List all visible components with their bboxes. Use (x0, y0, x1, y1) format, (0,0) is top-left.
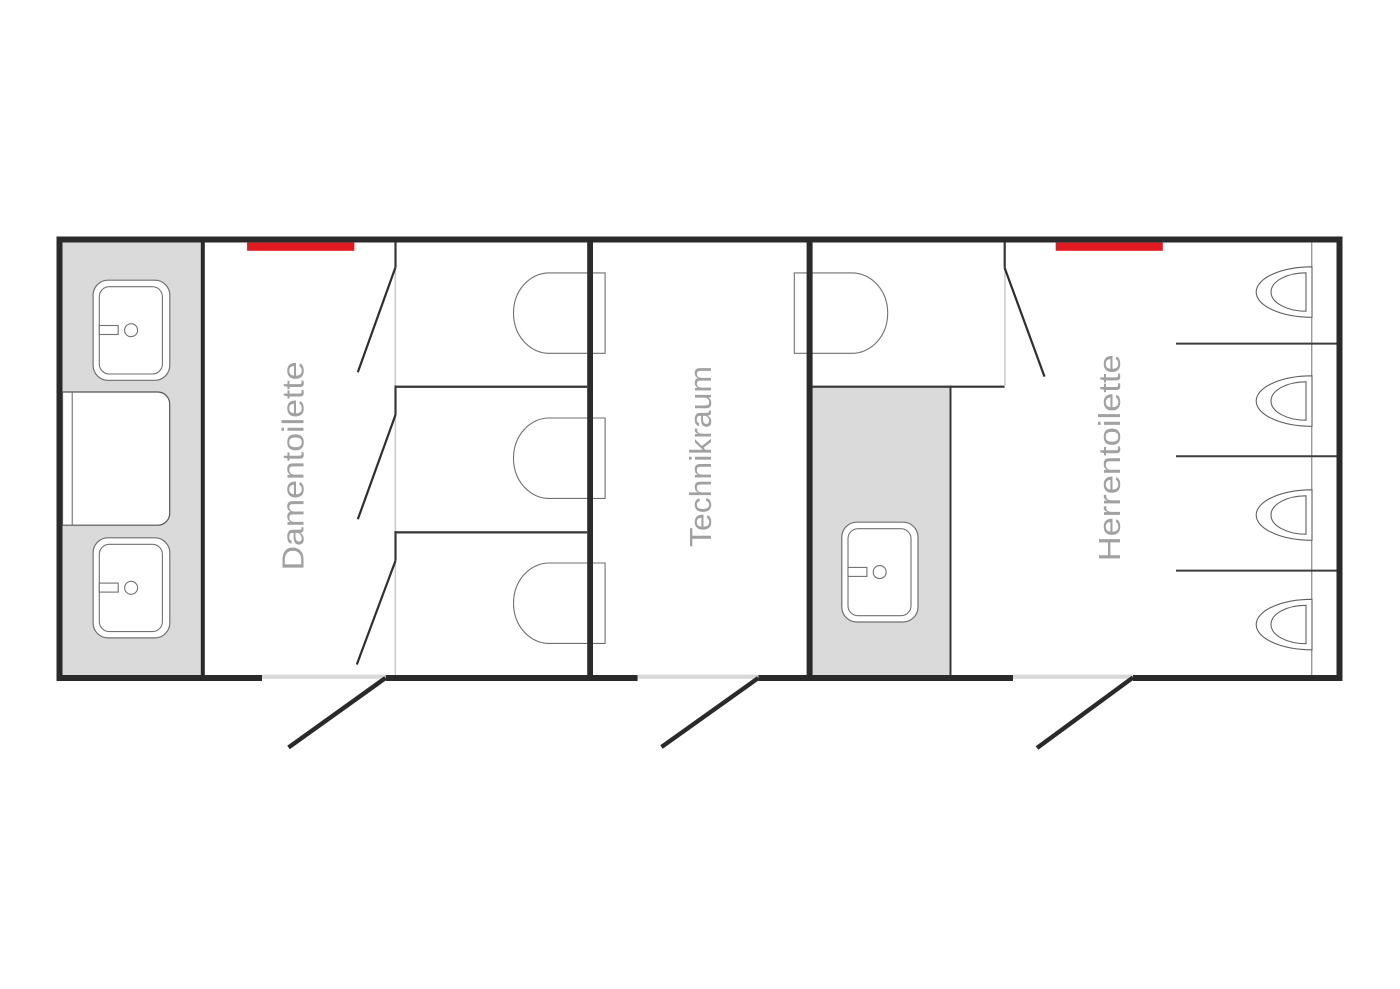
svg-text:Damentoilette: Damentoilette (276, 361, 311, 570)
svg-text:Herrentoilette: Herrentoilette (1092, 354, 1127, 561)
svg-text:Technikraum: Technikraum (683, 366, 718, 547)
